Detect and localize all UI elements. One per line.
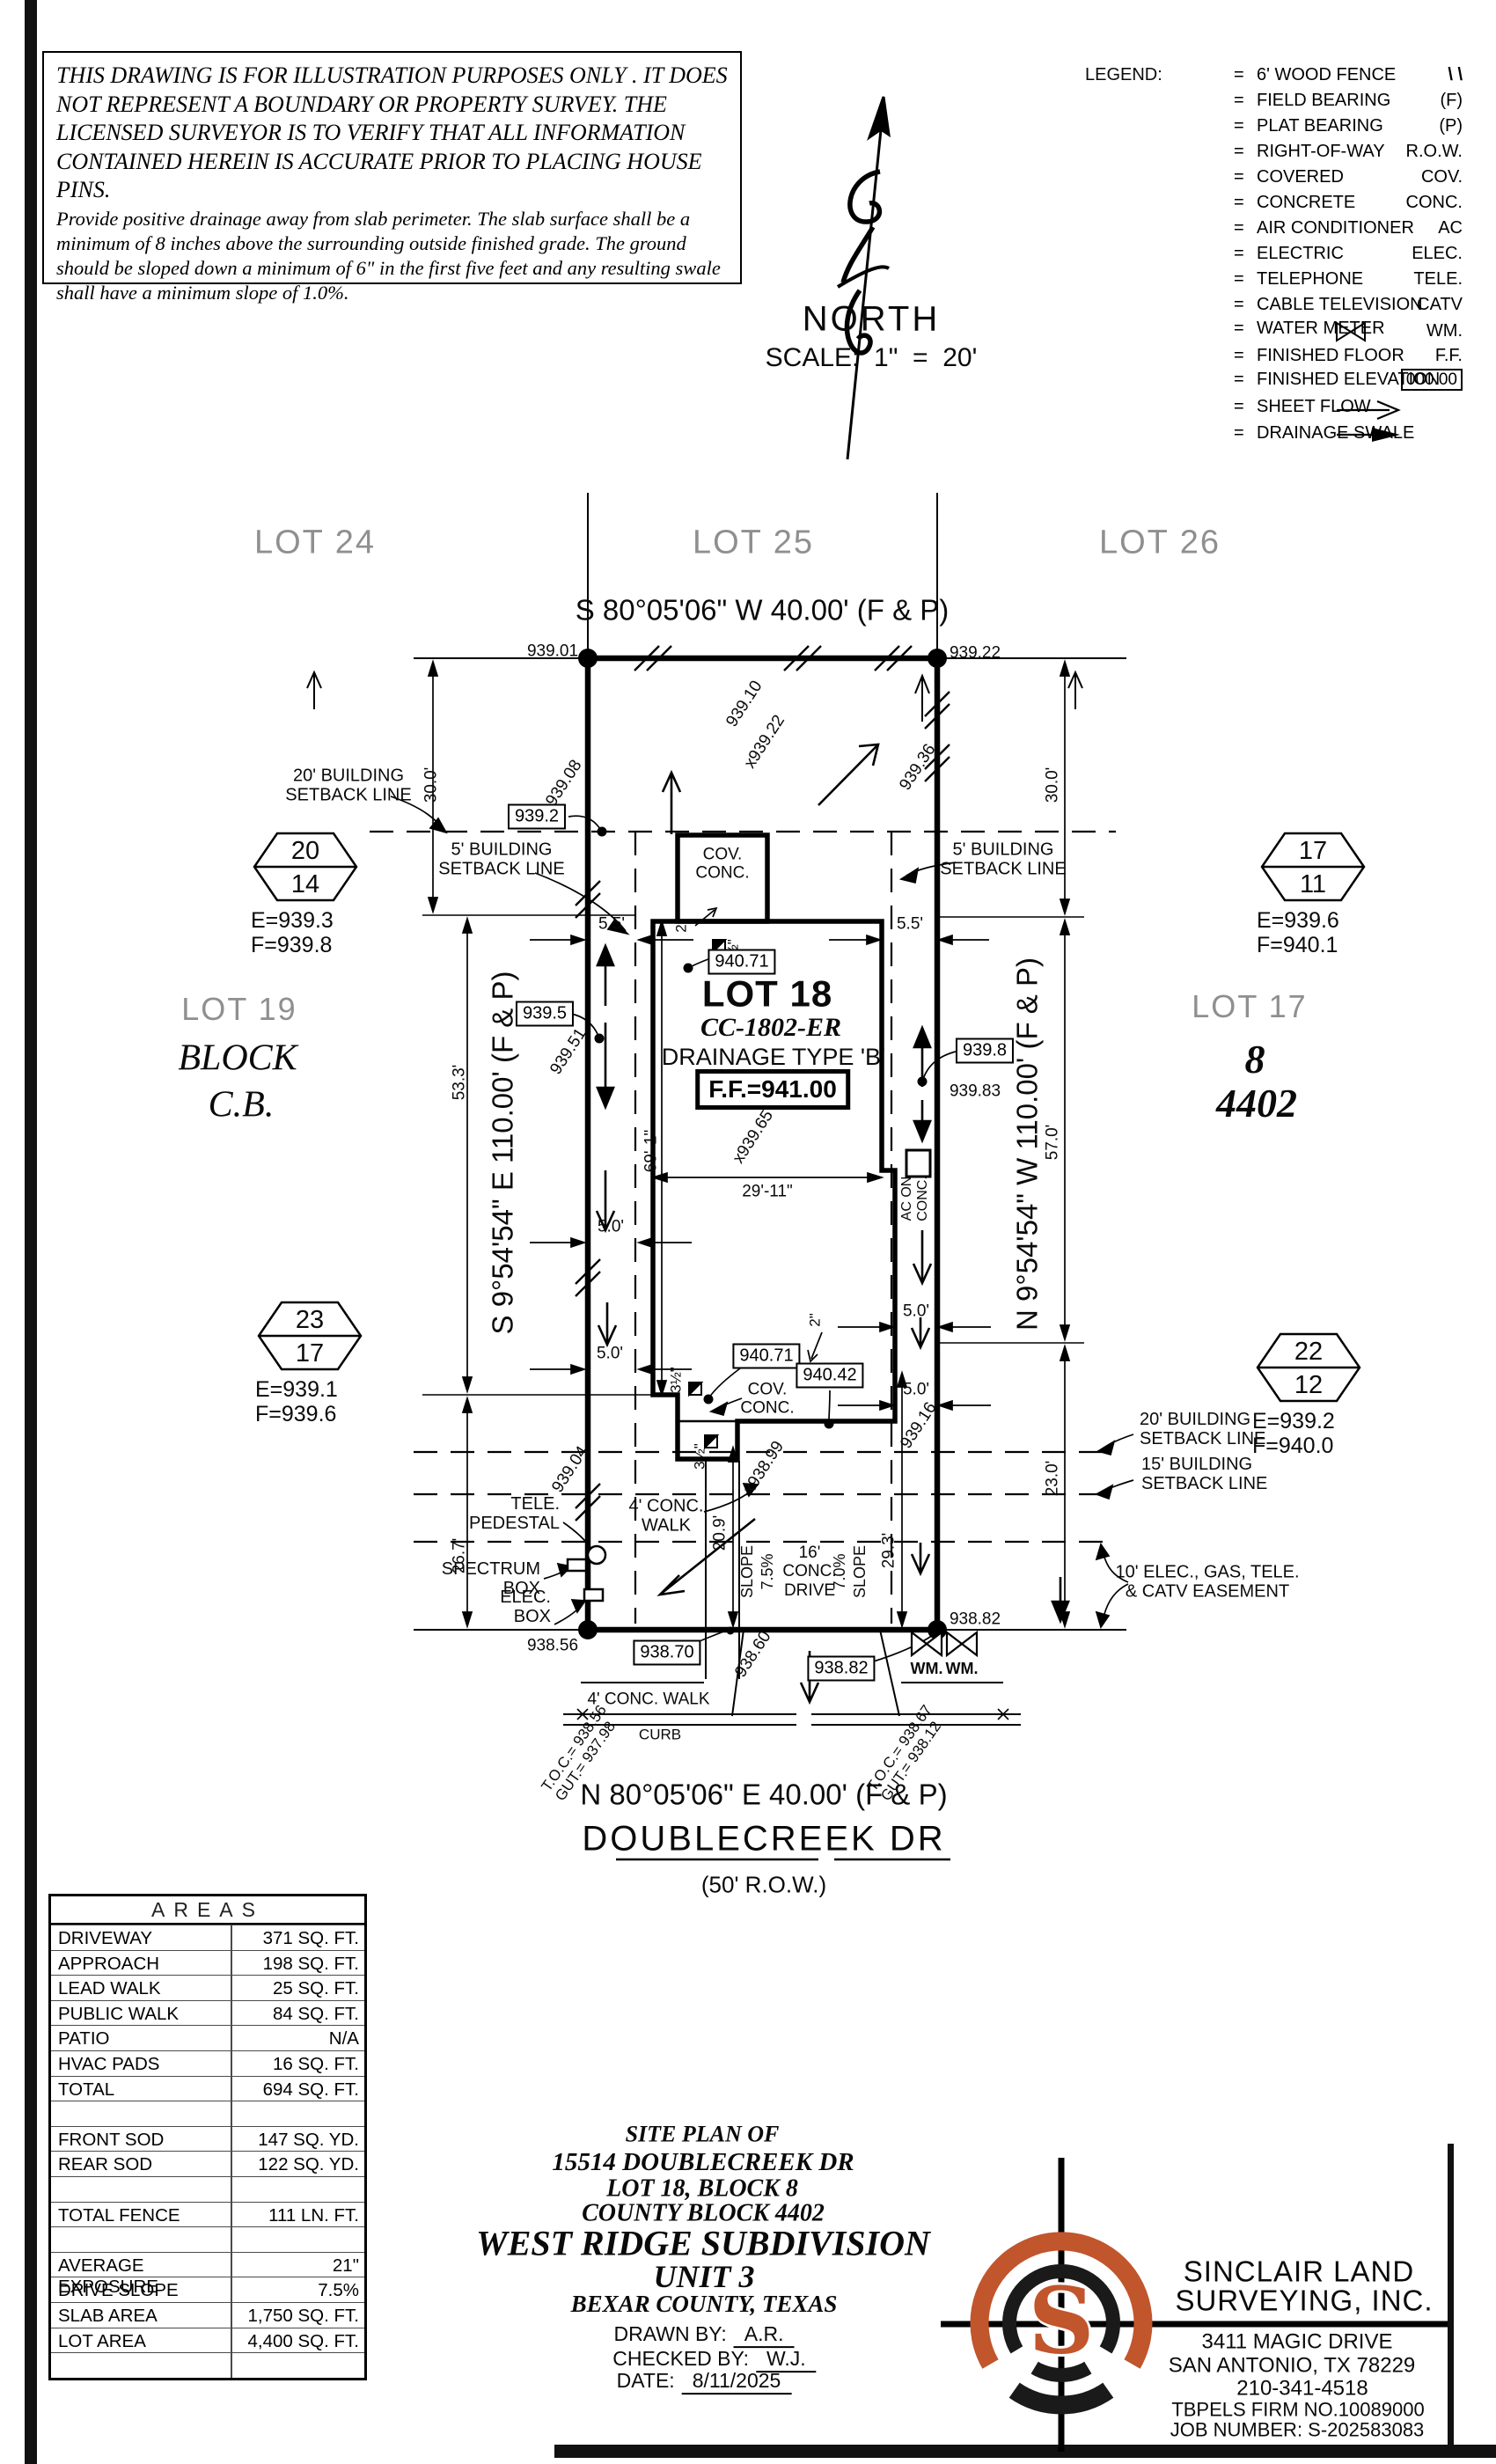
monument-id-top: 22 (1294, 1338, 1323, 1366)
west-bearing: N 9°54'54" W 110.00' (F & P) (1012, 957, 1045, 1331)
tele-pedestal-symbol (588, 1546, 605, 1564)
dim-23ft: 23.0' (1043, 1461, 1061, 1497)
monument-id-top: 23 (296, 1306, 324, 1334)
table-row (51, 2352, 364, 2378)
dim-5ft: 5.0' (598, 1217, 624, 1236)
disclaimer-drainage-note: Provide positive drainage away from slab… (56, 207, 728, 306)
dim-5ft: 5.0' (903, 1380, 929, 1398)
setback-20ft-label-right: 20' BUILDINGSETBACK LINE (1140, 1410, 1265, 1449)
legend-row: TELE. =TELEPHONE (1084, 269, 1463, 295)
legend-row: (P) =PLAT BEARING (1084, 116, 1463, 142)
legend-row: WM. =WATER METER (1084, 319, 1463, 344)
lot18-title: LOT 18 (702, 972, 832, 1014)
tele-pedestal-label: TELE.PEDESTAL (469, 1494, 560, 1534)
lot25-label: LOT 25 (693, 524, 814, 562)
boxed-elevation: 938.82 (807, 1656, 875, 1682)
boxed-elevation: 940.71 (732, 1344, 800, 1369)
dim-5ft: 5.0' (903, 1302, 929, 1320)
table-row: SLAB AREA1,750 SQ. FT. (51, 2302, 364, 2328)
table-row: HVAC PADS16 SQ. FT. (51, 2050, 364, 2076)
table-row: DRIVE SLOPE7.5% (51, 2277, 364, 2302)
legend-row: 000.00 =FINISHED ELEVATION (1084, 370, 1463, 395)
drive-slope-label: SLOPE (851, 1545, 869, 1598)
setback-5ft-label-right: 5' BUILDINGSETBACK LINE (940, 840, 1066, 880)
legend-row: F.F. =FINISHED FLOOR (1084, 346, 1463, 371)
rear-bearing: S 80°05'06" W 40.00' (F & P) (576, 595, 950, 627)
street-name: DOUBLECREEK DR (582, 1820, 945, 1859)
legend-row: (F) =FIELD BEARING (1084, 91, 1463, 116)
setback-5ft-label-left: 5' BUILDINGSETBACK LINE (438, 840, 564, 880)
north-arrow (838, 97, 889, 459)
monument-id-bottom: 11 (1300, 870, 1326, 898)
boxed-elevation: 939.5 (516, 1001, 574, 1027)
dim-29ft11in: 29'-11" (742, 1182, 793, 1200)
table-row (51, 2101, 364, 2126)
covered-concrete-label-rear: COV.CONC. (695, 846, 749, 884)
dim-30ft: 30.0' (422, 767, 440, 803)
block-label: BLOCK (178, 1038, 297, 1079)
east-bearing: S 9°54'54" E 110.00' (F & P) (488, 972, 520, 1335)
boxed-elevation: 938.70 (633, 1640, 700, 1666)
site-plan-sheet: THIS DRAWING IS FOR ILLUSTRATION PURPOSE… (0, 0, 1496, 2464)
monument-elevations: E=939.3F=939.8 (251, 908, 334, 957)
lot18-drainage-type: DRAINAGE TYPE 'B' (662, 1044, 885, 1070)
table-row (51, 2176, 364, 2202)
dim-57ft: 57.0' (1043, 1125, 1061, 1161)
spectrum-box-symbol (568, 1559, 586, 1571)
boxed-elevation: 940.42 (796, 1363, 863, 1389)
boxed-elevation: 939.8 (956, 1038, 1014, 1064)
water-meter-label: WM. (946, 1660, 979, 1677)
conc-drive-label: 16'CONC.DRIVE (782, 1544, 836, 1600)
dim-3-5in: 3½" (691, 1443, 708, 1470)
monument-id-top: 20 (291, 837, 319, 865)
ac-on-conc-label: AC ONCONC. (899, 1176, 931, 1221)
lot18-plan-code: CC-1802-ER (700, 1013, 841, 1043)
block8-label: 8 (1245, 1037, 1265, 1082)
title-site-plan-of: SITE PLAN OF (626, 2121, 780, 2146)
table-row: TOTAL FENCE111 LN. FT. (51, 2202, 364, 2227)
setback-15ft-label: 15' BUILDINGSETBACK LINE (1141, 1455, 1267, 1494)
legend-row: AC =AIR CONDITIONER (1084, 218, 1463, 244)
legend-row: =SHEET FLOW (1084, 397, 1463, 422)
dim-3-5in: 3½" (667, 1367, 684, 1393)
drive-slope-pct: 7.5% (759, 1553, 776, 1589)
spot-elevation: 938.82 (950, 1610, 1001, 1628)
spot-elevation: 939.22 (950, 643, 1001, 662)
lead-walk-label: 4' CONC.WALK (629, 1497, 704, 1536)
setback-20ft-label-left: 20' BUILDINGSETBACK LINE (285, 766, 411, 806)
table-row: PUBLIC WALK84 SQ. FT. (51, 2000, 364, 2026)
table-row: TOTAL694 SQ. FT. (51, 2076, 364, 2101)
firm-job-number: JOB NUMBER: S-202583083 (1170, 2420, 1425, 2442)
dim-30ft: 30.0' (1043, 767, 1061, 803)
title-subdivision: WEST RIDGE SUBDIVISION (476, 2225, 930, 2264)
title-unit: UNIT 3 (654, 2259, 755, 2294)
spot-elevation: 939.01 (527, 642, 578, 660)
elec-box-symbol (584, 1589, 603, 1601)
public-walk-label: 4' CONC. WALK (587, 1690, 709, 1708)
checked-by-row: CHECKED BY:W.J. (612, 2348, 816, 2371)
water-meter-label: WM. (911, 1660, 943, 1677)
dim-5-5ft: 5.5' (598, 914, 625, 933)
legend-row: CONC. =CONCRETE (1084, 193, 1463, 218)
dim-5-5ft: 5.5' (897, 914, 923, 933)
finished-floor-elevation: F.F.=941.00 (695, 1069, 850, 1110)
dim-5ft: 5.0' (597, 1344, 623, 1362)
table-row: APPROACH198 SQ. FT. (51, 1950, 364, 1976)
boxed-elevation: 939.2 (508, 804, 566, 830)
disclaimer-caps: THIS DRAWING IS FOR ILLUSTRATION PURPOSE… (56, 62, 728, 205)
title-county-state: BEXAR COUNTY, TEXAS (571, 2291, 838, 2317)
dim-69ft1in: 69'-1" (642, 1130, 660, 1172)
dim-20-9ft: 20.9' (710, 1515, 729, 1551)
firm-address-1: 3411 MAGIC DRIVE (1202, 2331, 1393, 2355)
monument-elevations: E=939.1F=939.6 (255, 1377, 338, 1426)
firm-phone: 210-341-4518 (1236, 2378, 1368, 2402)
elec-box-label: ELEC.BOX (500, 1588, 551, 1627)
street-row: (50' R.O.W.) (701, 1872, 826, 1897)
firm-logo-letter: S (1028, 2267, 1094, 2375)
drive-slope-pct: 7.0% (831, 1553, 848, 1589)
boxed-elevation: 940.71 (708, 950, 775, 975)
cb4402-label: 4402 (1216, 1081, 1297, 1126)
drawn-by-row: DRAWN BY:A.R. (614, 2323, 795, 2346)
drawn-by-value: A.R. (734, 2322, 795, 2348)
title-lot-block: LOT 18, BLOCK 8 (606, 2174, 798, 2202)
scale-label: SCALE: 1" = 20' (766, 343, 978, 373)
lot26-label: LOT 26 (1099, 524, 1221, 562)
dim-53-3ft: 53.3' (450, 1065, 468, 1101)
firm-tbpels: TBPELS FIRM NO.10089000 (1171, 2400, 1424, 2422)
legend-row: =DRAINAGE SWALE (1084, 423, 1463, 449)
monument-elevations: E=939.2F=940.0 (1252, 1409, 1335, 1458)
table-row (51, 2226, 364, 2252)
table-row: AVERAGE EXPOSURE21" (51, 2252, 364, 2277)
lot17-label: LOT 17 (1192, 989, 1307, 1024)
curb-label: CURB (639, 1726, 681, 1742)
monument-id-bottom: 14 (291, 870, 319, 898)
drive-slope-label: SLOPE (738, 1545, 756, 1598)
spot-elevation: 939.83 (950, 1082, 1001, 1100)
legend-row: R.O.W. =RIGHT-OF-WAY (1084, 142, 1463, 167)
table-row: REAR SOD122 SQ. YD. (51, 2151, 364, 2176)
dim-2in: 2" (806, 1313, 823, 1327)
firm-name-2: SURVEYING, INC. (1175, 2285, 1433, 2318)
flow-arrows (307, 672, 1082, 1702)
table-row: DRIVEWAY371 SQ. FT. (51, 1925, 364, 1950)
table-row: FRONT SOD147 SQ. YD. (51, 2126, 364, 2152)
monument-elevations: E=939.6F=940.1 (1257, 908, 1339, 957)
title-address: 15514 DOUBLECREEK DR (552, 2148, 854, 2176)
legend-row: \ \ =6' WOOD FENCE (1084, 65, 1463, 91)
block-cb-label: C.B. (209, 1084, 275, 1126)
disclaimer-note: THIS DRAWING IS FOR ILLUSTRATION PURPOSE… (42, 51, 742, 284)
areas-table: AREAS DRIVEWAY371 SQ. FT. APPROACH198 SQ… (48, 1894, 367, 2380)
lot24-label: LOT 24 (254, 524, 376, 562)
legend-row: CATV =CABLE TELEVISION (1084, 295, 1463, 320)
spot-elevation: 938.56 (527, 1636, 578, 1654)
monument-id-top: 17 (1299, 837, 1327, 865)
table-row: LEAD WALK25 SQ. FT. (51, 1975, 364, 2000)
lot19-label: LOT 19 (181, 992, 297, 1027)
firm-address-2: SAN ANTONIO, TX 78229 (1169, 2355, 1416, 2379)
monument-id-bottom: 17 (296, 1339, 324, 1368)
covered-concrete-label-front: COV.CONC. (740, 1381, 794, 1419)
legend-row: COV. =COVERED (1084, 167, 1463, 193)
dim-29-3ft: 29.3' (879, 1533, 898, 1569)
easement-label: 10' ELEC., GAS, TELE.& CATV EASEMENT (1115, 1563, 1299, 1602)
north-label: NORTH (803, 300, 940, 340)
date-value: 8/11/2025 (682, 2369, 792, 2394)
table-row: LOT AREA4,400 SQ. FT. (51, 2328, 364, 2353)
dim-2in: 2" (672, 919, 689, 933)
date-row: DATE:8/11/2025 (617, 2370, 792, 2393)
areas-table-title: AREAS (51, 1896, 364, 1925)
monument-id-bottom: 12 (1294, 1371, 1323, 1399)
table-row: PATION/A (51, 2025, 364, 2050)
legend-row: ELEC. =ELECTRIC (1084, 244, 1463, 269)
